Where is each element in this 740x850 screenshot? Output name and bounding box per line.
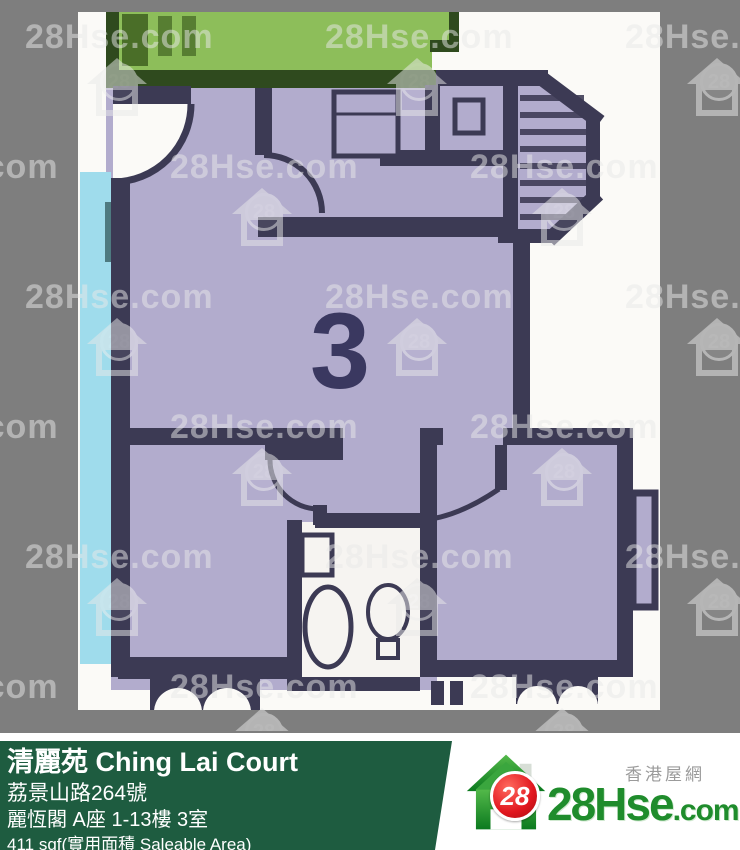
window-bay	[633, 493, 655, 607]
watermark-badge: 28	[245, 713, 283, 731]
house-roof-icon	[687, 58, 740, 84]
estate-title: 清麗苑 Ching Lai Court	[7, 744, 452, 780]
watermark-badge: 28	[700, 323, 738, 361]
stair-bay-right-wall	[586, 115, 600, 201]
toilet-cistern	[302, 535, 332, 575]
watermark-badge: 28	[545, 713, 583, 731]
wash-basin	[368, 585, 408, 639]
kitchen-divider-wall	[425, 85, 440, 162]
bedroom1-bottom-wall	[258, 217, 505, 237]
house-28-icon: 28	[687, 578, 740, 636]
bathroom-top-ledge	[265, 445, 343, 460]
house-roof-icon	[687, 318, 740, 344]
green-neighbor-area	[106, 12, 459, 88]
living-right-wall	[513, 240, 530, 433]
basin-pedestal	[378, 640, 398, 658]
bedroom2-top-wall	[503, 428, 633, 445]
logo-28-badge[interactable]: 28	[490, 771, 540, 821]
living-bottom-wall	[130, 428, 343, 445]
estate-area-info: 411 sqf(實用面積 Saleable Area)	[7, 833, 452, 850]
hall-wall	[255, 88, 272, 155]
kitchen-sink	[455, 100, 483, 133]
house-28-icon: 28	[532, 708, 592, 731]
house-28-icon: 28	[232, 708, 292, 731]
top-wall	[436, 70, 548, 86]
bottom-wall-left	[118, 657, 302, 679]
floorplan-svg: 3	[78, 12, 660, 710]
house-body-icon	[696, 604, 738, 636]
brand-suffix: .com	[673, 794, 739, 827]
bathroom-bottom-wall	[287, 677, 420, 691]
brand-name: 28Hse	[547, 778, 673, 830]
page: 3 28Hse.com 28 28Hse.com 28 28Hse.com 28	[0, 0, 740, 850]
house-roof-icon	[687, 578, 740, 604]
bedroom2-left-wall	[420, 440, 437, 677]
bedroom2-right-wall	[617, 445, 633, 663]
floorplan-image: 3	[78, 12, 660, 710]
toilet-bowl	[305, 587, 351, 667]
stair-left-wall	[503, 83, 518, 243]
house-body-icon	[696, 344, 738, 376]
bedroom2-door-leaf	[495, 445, 507, 490]
entrance-door-leaf	[113, 86, 191, 104]
bedroom2-bottom-wall	[420, 660, 633, 677]
bathroom-top-wall	[315, 513, 437, 528]
house-body-icon	[696, 84, 738, 116]
house-28-icon: 28	[687, 58, 740, 116]
logo-badge-number: 28	[501, 774, 530, 818]
bed	[334, 92, 398, 156]
estate-address: 荔景山路264號	[7, 780, 452, 807]
site-logo-link[interactable]: 28Hse.com	[547, 777, 739, 831]
watermark-badge: 28	[700, 583, 738, 621]
house-roof-icon	[232, 708, 292, 731]
house-28-icon: 28	[687, 318, 740, 376]
left-wall	[111, 178, 130, 677]
bottom-banner: 清麗苑 Ching Lai Court 荔景山路264號 麗恆閣 A座 1-13…	[0, 733, 740, 850]
house-roof-icon	[532, 708, 592, 731]
estate-block-info: 麗恆閣 A座 1-13樓 3室	[7, 807, 452, 833]
estate-info-box: 清麗苑 Ching Lai Court 荔景山路264號 麗恆閣 A座 1-13…	[0, 741, 452, 850]
unit-number-label: 3	[310, 290, 370, 411]
watermark-badge: 28	[700, 63, 738, 101]
